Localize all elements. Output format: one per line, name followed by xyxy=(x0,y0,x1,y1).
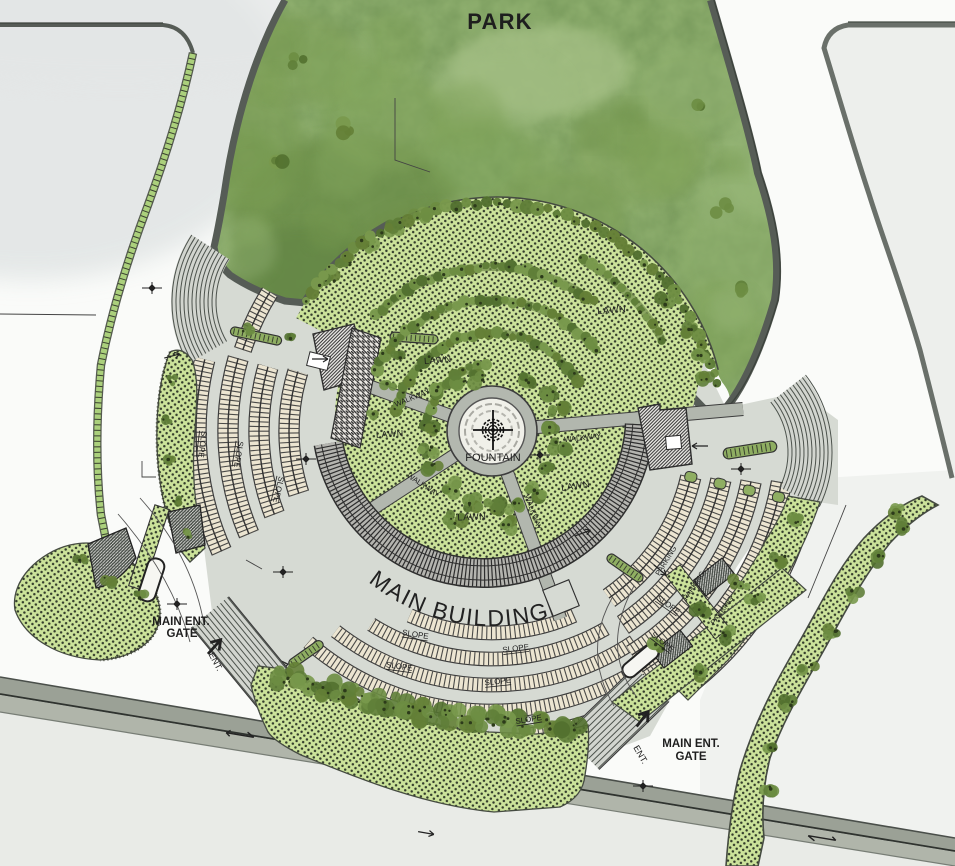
svg-text:GATE: GATE xyxy=(675,751,706,763)
svg-text:MAIN ENT.: MAIN ENT. xyxy=(662,738,720,750)
svg-text:LAWN: LAWN xyxy=(424,354,452,366)
svg-text:LAWN: LAWN xyxy=(457,511,486,523)
svg-text:LAWN: LAWN xyxy=(376,428,404,439)
svg-text:GATE: GATE xyxy=(166,628,197,640)
svg-text:FOUNTAIN: FOUNTAIN xyxy=(465,452,520,464)
svg-text:MAIN ENT.: MAIN ENT. xyxy=(152,616,210,628)
svg-text:PARK: PARK xyxy=(467,9,533,34)
